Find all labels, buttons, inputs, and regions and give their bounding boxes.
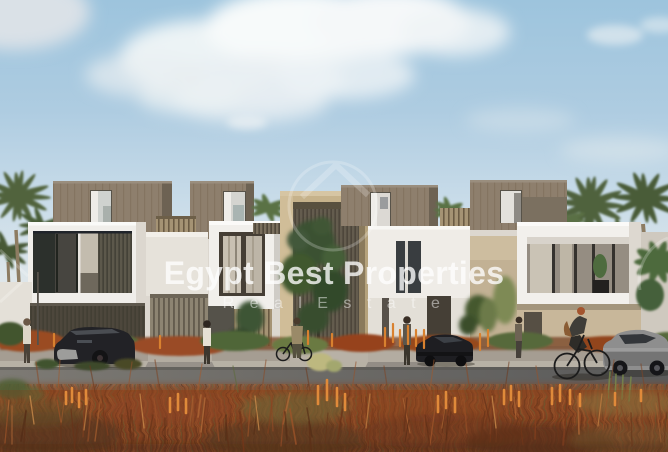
svg-text:R e a l E s t a t e: R e a l E s t a t e	[223, 295, 446, 312]
svg-text:Egypt Best Properties: Egypt Best Properties	[164, 255, 505, 291]
